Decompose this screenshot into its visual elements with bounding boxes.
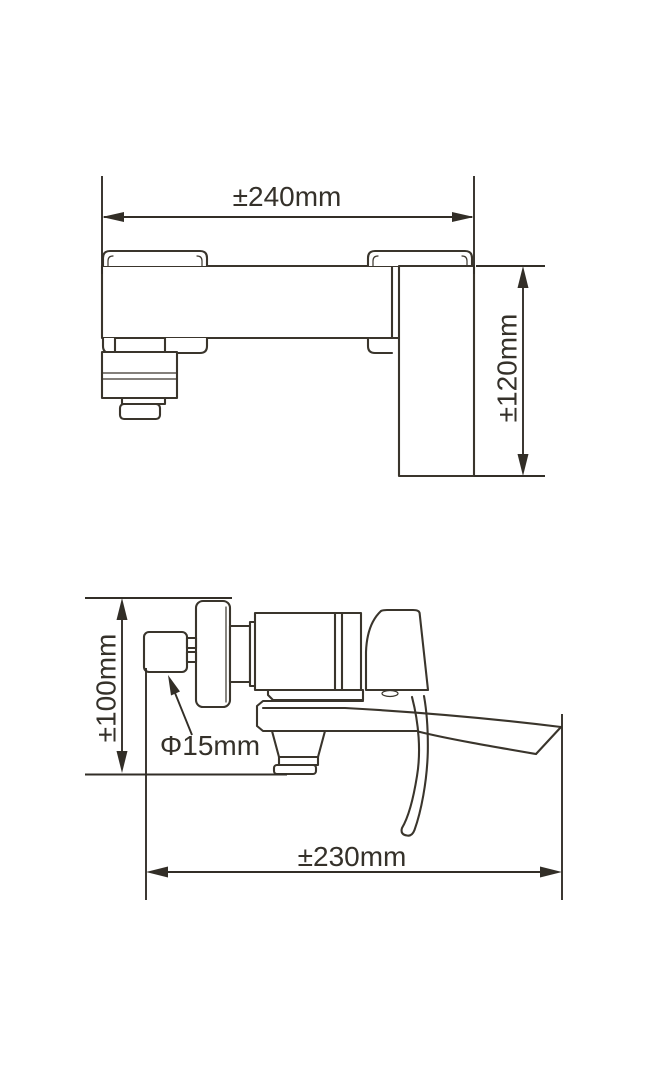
spout-blade-tip [536,727,561,754]
lever-handle [402,696,428,836]
inlet-connector [144,632,187,672]
handle-screw [382,691,398,697]
drawing-page: ±240mm ±120mm [0,0,649,1080]
inlet-collar-ridge [187,652,196,662]
mounting-tab-top-right [368,251,472,266]
valve-body [255,613,361,690]
dim-depth: ±120mm [474,266,545,476]
arrowhead-right [452,212,474,222]
outlet-step [279,757,318,765]
mounting-tab-bottom-right [368,338,392,353]
dim-label-length: ±230mm [298,841,407,872]
dim-label-height: ±100mm [91,634,122,743]
dim-label-inlet-diameter: Φ15mm [160,730,260,761]
wall-plate [196,601,230,707]
handle-knob-plan [120,404,160,419]
body-flange [268,690,363,700]
arrowhead-left [146,867,168,878]
handle-neck-plan [115,338,165,353]
spout-blade-top [263,708,561,727]
handle-body-plan [102,352,177,398]
spout-plan [399,266,474,476]
leader-arrowhead [168,675,180,696]
arrowhead-left [102,212,124,222]
top-view [102,251,474,476]
arrowhead-right [540,867,562,878]
inlet-collar-ridge [187,638,196,648]
body-connector [230,626,250,682]
spout-blade-bottom [418,732,536,755]
dim-label-depth: ±120mm [492,314,523,423]
mounting-tab-top-left [103,251,207,266]
aerator [274,765,316,774]
spout-mount-band [257,701,418,731]
leader-line [175,693,192,735]
arrowhead-top [518,266,529,288]
arrowhead-bottom [518,454,529,476]
mounting-bar-plan [102,266,400,338]
arrowhead-bottom [117,751,128,773]
side-view [144,601,561,836]
dim-label-width: ±240mm [233,181,342,212]
technical-drawing: ±240mm ±120mm [0,0,649,1080]
outlet-neck [272,731,325,757]
handle-base [366,610,428,690]
arrowhead-top [117,598,128,620]
